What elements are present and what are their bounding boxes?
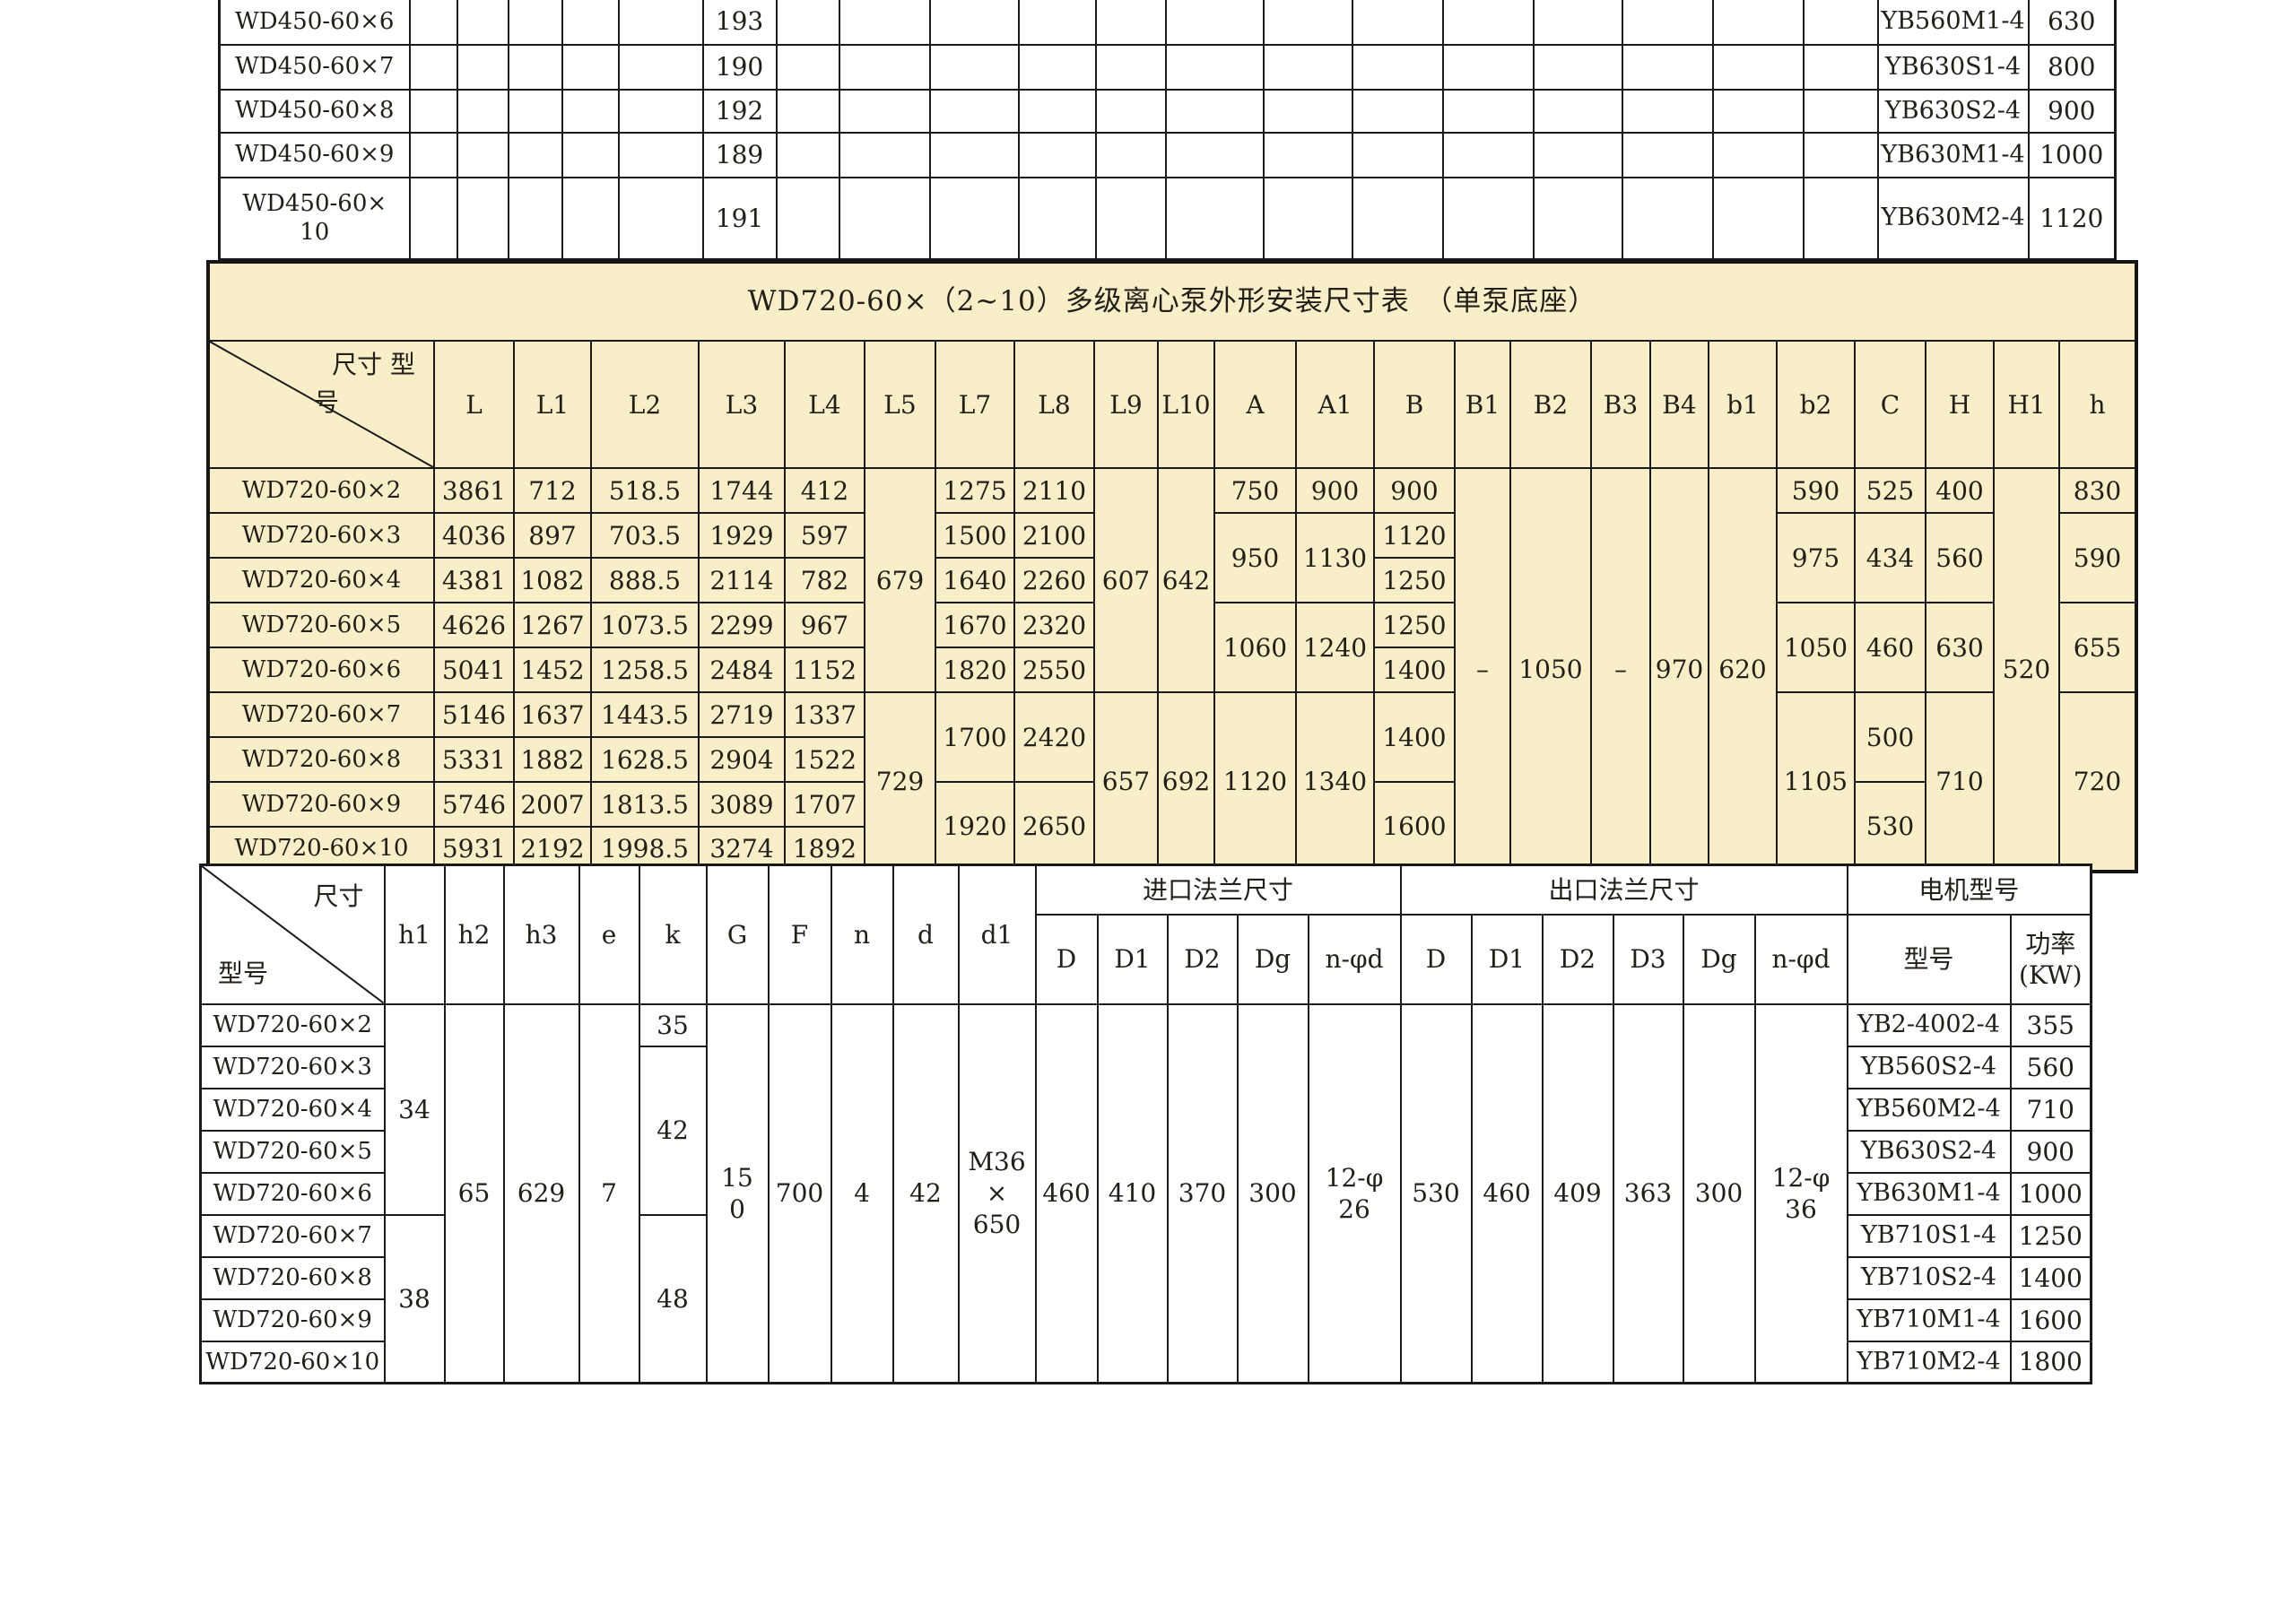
cell: 525: [1855, 468, 1926, 513]
col-header: L2: [591, 341, 699, 468]
cell: 2484: [699, 647, 785, 692]
empty-cell: [777, 45, 839, 90]
col-header: k: [639, 865, 707, 1004]
empty-cell: [777, 178, 839, 260]
empty-cell: [1804, 45, 1878, 90]
cell: 1050: [1510, 468, 1591, 872]
cell: 370: [1168, 1004, 1238, 1384]
col-header: G: [707, 865, 769, 1004]
cell: 630: [1926, 603, 1994, 692]
cell: 1640: [935, 558, 1014, 603]
col-header: d1: [959, 865, 1036, 1004]
empty-cell: [1713, 45, 1804, 90]
cell: 1082: [514, 558, 591, 603]
cell: 597: [785, 513, 865, 558]
col-header: F: [769, 865, 831, 1004]
cell: 38: [385, 1215, 445, 1384]
cell: 520: [1994, 468, 2059, 872]
col-header: n-φd: [1309, 915, 1401, 1004]
empty-cell: [1264, 178, 1352, 260]
cell: 1522: [785, 737, 865, 782]
cell: 5746: [434, 782, 514, 827]
empty-cell: [457, 133, 509, 178]
col-header: n: [831, 865, 893, 1004]
cell: 460: [1855, 603, 1926, 692]
empty-cell: [562, 178, 619, 260]
empty-cell: [509, 133, 562, 178]
empty-cell: [457, 0, 509, 45]
model-cell: WD720-60×2: [201, 1004, 385, 1046]
empty-cell: [1352, 133, 1443, 178]
motor-model-cell: YB560M2-4: [1848, 1089, 2011, 1131]
table-row: WD450-60×7 190 YB630S1-4 800: [220, 45, 2116, 90]
cell: 2550: [1014, 647, 1094, 692]
empty-cell: [1443, 0, 1534, 45]
cell: 2114: [699, 558, 785, 603]
cell: 2299: [699, 603, 785, 647]
cell: 2260: [1014, 558, 1094, 603]
cell: 530: [1401, 1004, 1472, 1384]
cell: 900: [1296, 468, 1374, 513]
corner-label-size: 尺寸: [313, 881, 363, 912]
model-cell: WD720-60×9: [208, 782, 434, 827]
col-header: B3: [1591, 341, 1650, 468]
cell: 700: [769, 1004, 831, 1384]
cell: 782: [785, 558, 865, 603]
cell: 1670: [935, 603, 1014, 647]
empty-cell: [619, 90, 703, 133]
cell: 729: [865, 692, 935, 872]
cell: 1073.5: [591, 603, 699, 647]
model-cell: WD450-60×7: [220, 45, 410, 90]
cell: 1500: [935, 513, 1014, 558]
motor-model-cell: YB630M1-4: [1848, 1173, 2011, 1215]
cell: 1267: [514, 603, 591, 647]
model-cell: WD450-60×8: [220, 90, 410, 133]
empty-cell: [1352, 45, 1443, 90]
empty-cell: [1352, 0, 1443, 45]
cell: 590: [2059, 513, 2136, 603]
empty-cell: [1019, 133, 1096, 178]
empty-cell: [1622, 178, 1713, 260]
empty-cell: [839, 45, 930, 90]
empty-cell: [1019, 45, 1096, 90]
empty-cell: [1534, 45, 1622, 90]
empty-cell: [1264, 0, 1352, 45]
cell: –: [1455, 468, 1510, 872]
empty-cell: [619, 0, 703, 45]
empty-cell: [1443, 178, 1534, 260]
empty-cell: [457, 90, 509, 133]
col-header: 功率 (KW): [2011, 915, 2092, 1004]
empty-cell: [930, 0, 1019, 45]
empty-cell: [410, 90, 457, 133]
wd450-table-partial: WD450-60×6 193 YB560M1-4 630 WD450-60×7 …: [218, 0, 2117, 261]
power-cell: 1250: [2011, 1215, 2092, 1257]
col-header: h2: [445, 865, 504, 1004]
cell: 1882: [514, 737, 591, 782]
col-header: C: [1855, 341, 1926, 468]
empty-cell: [1019, 178, 1096, 260]
power-cell: 630: [2029, 0, 2116, 45]
cell: 560: [1926, 513, 1994, 603]
power-cell: 900: [2029, 90, 2116, 133]
cell: 42: [639, 1046, 707, 1215]
cell: 412: [785, 468, 865, 513]
motor-model-cell: YB560S2-4: [1848, 1046, 2011, 1089]
col-header: 型号: [1848, 915, 2011, 1004]
motor-model-cell: YB710S1-4: [1848, 1215, 2011, 1257]
cell: 629: [504, 1004, 579, 1384]
cell: 1820: [935, 647, 1014, 692]
group-header-motor: 电机型号: [1848, 865, 2092, 915]
cell: 4381: [434, 558, 514, 603]
model-cell: WD720-60×9: [201, 1299, 385, 1341]
empty-cell: [1352, 90, 1443, 133]
cell: 12-φ 36: [1755, 1004, 1848, 1384]
header-row: 尺寸 型号 h1 h2 h3 e k G F n d d1 进口法兰尺寸 出口法…: [201, 865, 2092, 915]
empty-cell: [1166, 45, 1264, 90]
empty-cell: [1166, 90, 1264, 133]
cell: 975: [1777, 513, 1855, 603]
empty-cell: [1534, 0, 1622, 45]
cell: 897: [514, 513, 591, 558]
cell: 679: [865, 468, 935, 692]
col-header: B2: [1510, 341, 1591, 468]
empty-cell: [509, 45, 562, 90]
corner-label-size: 尺寸 型: [332, 349, 415, 380]
cell: 1744: [699, 468, 785, 513]
cell: 2904: [699, 737, 785, 782]
cell: 2110: [1014, 468, 1094, 513]
group-header-outlet-flange: 出口法兰尺寸: [1401, 865, 1848, 915]
col-header: D1: [1472, 915, 1543, 1004]
cell: 1929: [699, 513, 785, 558]
cell: 518.5: [591, 468, 699, 513]
cell: 2719: [699, 692, 785, 737]
cell: 5331: [434, 737, 514, 782]
cell: 42: [893, 1004, 959, 1384]
model-cell: WD720-60×8: [208, 737, 434, 782]
empty-cell: [777, 133, 839, 178]
empty-cell: [457, 178, 509, 260]
empty-cell: [619, 45, 703, 90]
power-cell: 1800: [2011, 1341, 2092, 1384]
cell: 1120: [1374, 513, 1455, 558]
empty-cell: [1166, 133, 1264, 178]
col-header: L4: [785, 341, 865, 468]
corner-label-model: 号: [314, 386, 339, 418]
cell: 1400: [1374, 692, 1455, 782]
cell: 2320: [1014, 603, 1094, 647]
col-header: D: [1401, 915, 1472, 1004]
col-header: b1: [1709, 341, 1777, 468]
table-row: WD450-60×9 189 YB630M1-4 1000: [220, 133, 2116, 178]
motor-model-cell: YB630S1-4: [1878, 45, 2029, 90]
model-cell: WD720-60×6: [201, 1173, 385, 1215]
cell: 703.5: [591, 513, 699, 558]
motor-model-cell: YB710M1-4: [1848, 1299, 2011, 1341]
motor-model-cell: YB630S2-4: [1848, 1131, 2011, 1173]
cell: 657: [1094, 692, 1158, 872]
value-cell: 191: [703, 178, 777, 260]
empty-cell: [1804, 133, 1878, 178]
col-header: A1: [1296, 341, 1374, 468]
cell: 34: [385, 1004, 445, 1215]
empty-cell: [839, 90, 930, 133]
empty-cell: [410, 178, 457, 260]
col-header: D2: [1543, 915, 1613, 1004]
empty-cell: [410, 0, 457, 45]
col-header: L8: [1014, 341, 1094, 468]
cell: 1452: [514, 647, 591, 692]
model-cell: WD450-60×9: [220, 133, 410, 178]
cell: 4036: [434, 513, 514, 558]
corner-header-cell: 尺寸 型 号: [208, 341, 434, 468]
model-cell: WD720-60×2: [208, 468, 434, 513]
col-header: D3: [1613, 915, 1683, 1004]
col-header: D2: [1168, 915, 1238, 1004]
cell: 692: [1158, 692, 1214, 872]
cell: 65: [445, 1004, 504, 1384]
cell: 363: [1613, 1004, 1683, 1384]
table-row: WD450-60× 10 191 YB630M2-4 1120: [220, 178, 2116, 260]
motor-model-cell: YB630M1-4: [1878, 133, 2029, 178]
empty-cell: [1166, 0, 1264, 45]
col-header: n-φd: [1755, 915, 1848, 1004]
cell: 48: [639, 1215, 707, 1384]
cell: 970: [1650, 468, 1709, 872]
cell: M36 × 650: [959, 1004, 1036, 1384]
cell: –: [1591, 468, 1650, 872]
model-cell: WD720-60×6: [208, 647, 434, 692]
model-cell: WD720-60×3: [208, 513, 434, 558]
col-header: b2: [1777, 341, 1855, 468]
motor-model-cell: YB710S2-4: [1848, 1257, 2011, 1299]
empty-cell: [1534, 133, 1622, 178]
cell: 500: [1855, 692, 1926, 782]
cell: 2420: [1014, 692, 1094, 782]
empty-cell: [619, 178, 703, 260]
col-header: L5: [865, 341, 935, 468]
cell: 300: [1683, 1004, 1755, 1384]
power-cell: 560: [2011, 1046, 2092, 1089]
table-row: WD720-60×7 5146 1637 1443.5 2719 1337 72…: [208, 692, 2136, 737]
model-cell: WD720-60×3: [201, 1046, 385, 1089]
cell: 642: [1158, 468, 1214, 692]
empty-cell: [839, 178, 930, 260]
empty-cell: [1352, 178, 1443, 260]
model-cell: WD720-60×4: [201, 1089, 385, 1131]
cell: 300: [1238, 1004, 1309, 1384]
empty-cell: [1019, 90, 1096, 133]
cell: 950: [1214, 513, 1296, 603]
col-header: L9: [1094, 341, 1158, 468]
empty-cell: [562, 45, 619, 90]
cell: 655: [2059, 603, 2136, 692]
motor-model-cell: YB710M2-4: [1848, 1341, 2011, 1384]
empty-cell: [777, 90, 839, 133]
cell: 1628.5: [591, 737, 699, 782]
motor-model-cell: YB560M1-4: [1878, 0, 2029, 45]
model-cell: WD720-60×5: [208, 603, 434, 647]
power-cell: 1000: [2011, 1173, 2092, 1215]
empty-cell: [509, 178, 562, 260]
empty-cell: [1622, 45, 1713, 90]
empty-cell: [1019, 0, 1096, 45]
col-header: A: [1214, 341, 1296, 468]
power-cell: 1600: [2011, 1299, 2092, 1341]
motor-model-cell: YB630M2-4: [1878, 178, 2029, 260]
power-cell: 355: [2011, 1004, 2092, 1046]
empty-cell: [1264, 133, 1352, 178]
col-header: Dg: [1683, 915, 1755, 1004]
value-cell: 189: [703, 133, 777, 178]
empty-cell: [562, 90, 619, 133]
power-cell: 1400: [2011, 1257, 2092, 1299]
cell: 1152: [785, 647, 865, 692]
empty-cell: [1534, 90, 1622, 133]
cell: 434: [1855, 513, 1926, 603]
motor-model-cell: YB630S2-4: [1878, 90, 2029, 133]
col-header: d: [893, 865, 959, 1004]
empty-cell: [1096, 0, 1166, 45]
empty-cell: [1804, 0, 1878, 45]
col-header: h1: [385, 865, 445, 1004]
power-cell: 710: [2011, 1089, 2092, 1131]
table-row: WD450-60×8 192 YB630S2-4 900: [220, 90, 2116, 133]
empty-cell: [509, 90, 562, 133]
empty-cell: [1534, 178, 1622, 260]
power-cell: 800: [2029, 45, 2116, 90]
cell: 2650: [1014, 782, 1094, 872]
col-header: Dg: [1238, 915, 1309, 1004]
cell: 530: [1855, 782, 1926, 872]
cell: 967: [785, 603, 865, 647]
empty-cell: [1166, 178, 1264, 260]
cell: 2100: [1014, 513, 1094, 558]
header-row: 尺寸 型 号 L L1 L2 L3 L4 L5 L7 L8 L9 L10 A A…: [208, 341, 2136, 468]
cell: 4626: [434, 603, 514, 647]
empty-cell: [509, 0, 562, 45]
empty-cell: [1264, 45, 1352, 90]
cell: 3089: [699, 782, 785, 827]
empty-cell: [1713, 133, 1804, 178]
cell: 1400: [1374, 647, 1455, 692]
col-header: B: [1374, 341, 1455, 468]
model-cell: WD720-60×8: [201, 1257, 385, 1299]
cell: 1637: [514, 692, 591, 737]
cell: 888.5: [591, 558, 699, 603]
empty-cell: [930, 178, 1019, 260]
group-header-inlet-flange: 进口法兰尺寸: [1036, 865, 1401, 915]
col-header: D: [1036, 915, 1098, 1004]
cell: 750: [1214, 468, 1296, 513]
cell: 1120: [1214, 692, 1296, 872]
empty-cell: [930, 133, 1019, 178]
col-header: L10: [1158, 341, 1214, 468]
power-cell: 1120: [2029, 178, 2116, 260]
cell: 1813.5: [591, 782, 699, 827]
cell: 712: [514, 468, 591, 513]
empty-cell: [930, 45, 1019, 90]
empty-cell: [1096, 90, 1166, 133]
cell: 710: [1926, 692, 1994, 872]
cell: 7: [579, 1004, 639, 1384]
cell: 5146: [434, 692, 514, 737]
empty-cell: [1713, 90, 1804, 133]
empty-cell: [410, 45, 457, 90]
cell: 900: [1374, 468, 1455, 513]
model-cell: WD720-60×10: [201, 1341, 385, 1384]
model-cell: WD720-60×5: [201, 1131, 385, 1173]
col-header: L: [434, 341, 514, 468]
empty-cell: [1622, 0, 1713, 45]
empty-cell: [1443, 133, 1534, 178]
col-header: H: [1926, 341, 1994, 468]
empty-cell: [1713, 0, 1804, 45]
cell: 1250: [1374, 603, 1455, 647]
col-header: H1: [1994, 341, 2059, 468]
empty-cell: [839, 133, 930, 178]
empty-cell: [1443, 90, 1534, 133]
motor-model-cell: YB2-4002-4: [1848, 1004, 2011, 1046]
empty-cell: [1622, 90, 1713, 133]
cell: 460: [1472, 1004, 1543, 1384]
power-cell: 900: [2011, 1131, 2092, 1173]
empty-cell: [1096, 45, 1166, 90]
cell: 1920: [935, 782, 1014, 872]
empty-cell: [562, 0, 619, 45]
cell: 35: [639, 1004, 707, 1046]
wd720-install-dim-table: WD720-60×（2~10）多级离心泵外形安装尺寸表 （单泵底座） 尺寸 型 …: [206, 260, 2138, 873]
empty-cell: [777, 0, 839, 45]
model-cell: WD450-60×6: [220, 0, 410, 45]
empty-cell: [410, 133, 457, 178]
col-header: L3: [699, 341, 785, 468]
cell: 830: [2059, 468, 2136, 513]
cell: 460: [1036, 1004, 1098, 1384]
empty-cell: [1713, 178, 1804, 260]
cell: 1250: [1374, 558, 1455, 603]
cell: 1443.5: [591, 692, 699, 737]
empty-cell: [1264, 90, 1352, 133]
value-cell: 192: [703, 90, 777, 133]
cell: 1130: [1296, 513, 1374, 603]
cell: 1258.5: [591, 647, 699, 692]
cell: 1105: [1777, 692, 1855, 872]
table-title: WD720-60×（2~10）多级离心泵外形安装尺寸表 （单泵底座）: [208, 262, 2136, 341]
cell: 1050: [1777, 603, 1855, 692]
cell: 400: [1926, 468, 1994, 513]
cell: 1707: [785, 782, 865, 827]
cell: 1275: [935, 468, 1014, 513]
col-header: B1: [1455, 341, 1510, 468]
cell: 1700: [935, 692, 1014, 782]
model-cell: WD720-60×4: [208, 558, 434, 603]
cell: 1060: [1214, 603, 1296, 692]
col-header: D1: [1098, 915, 1168, 1004]
table-row: WD720-60×2 34 65 629 7 35 15 0 700 4 42 …: [201, 1004, 2092, 1046]
cell: 12-φ 26: [1309, 1004, 1401, 1384]
table-row: WD720-60×（2~10）多级离心泵外形安装尺寸表 （单泵底座）: [208, 262, 2136, 341]
empty-cell: [457, 45, 509, 90]
empty-cell: [1096, 133, 1166, 178]
table-row: WD720-60×2 3861 712 518.5 1744 412 679 1…: [208, 468, 2136, 513]
empty-cell: [1804, 90, 1878, 133]
empty-cell: [619, 133, 703, 178]
col-header: e: [579, 865, 639, 1004]
